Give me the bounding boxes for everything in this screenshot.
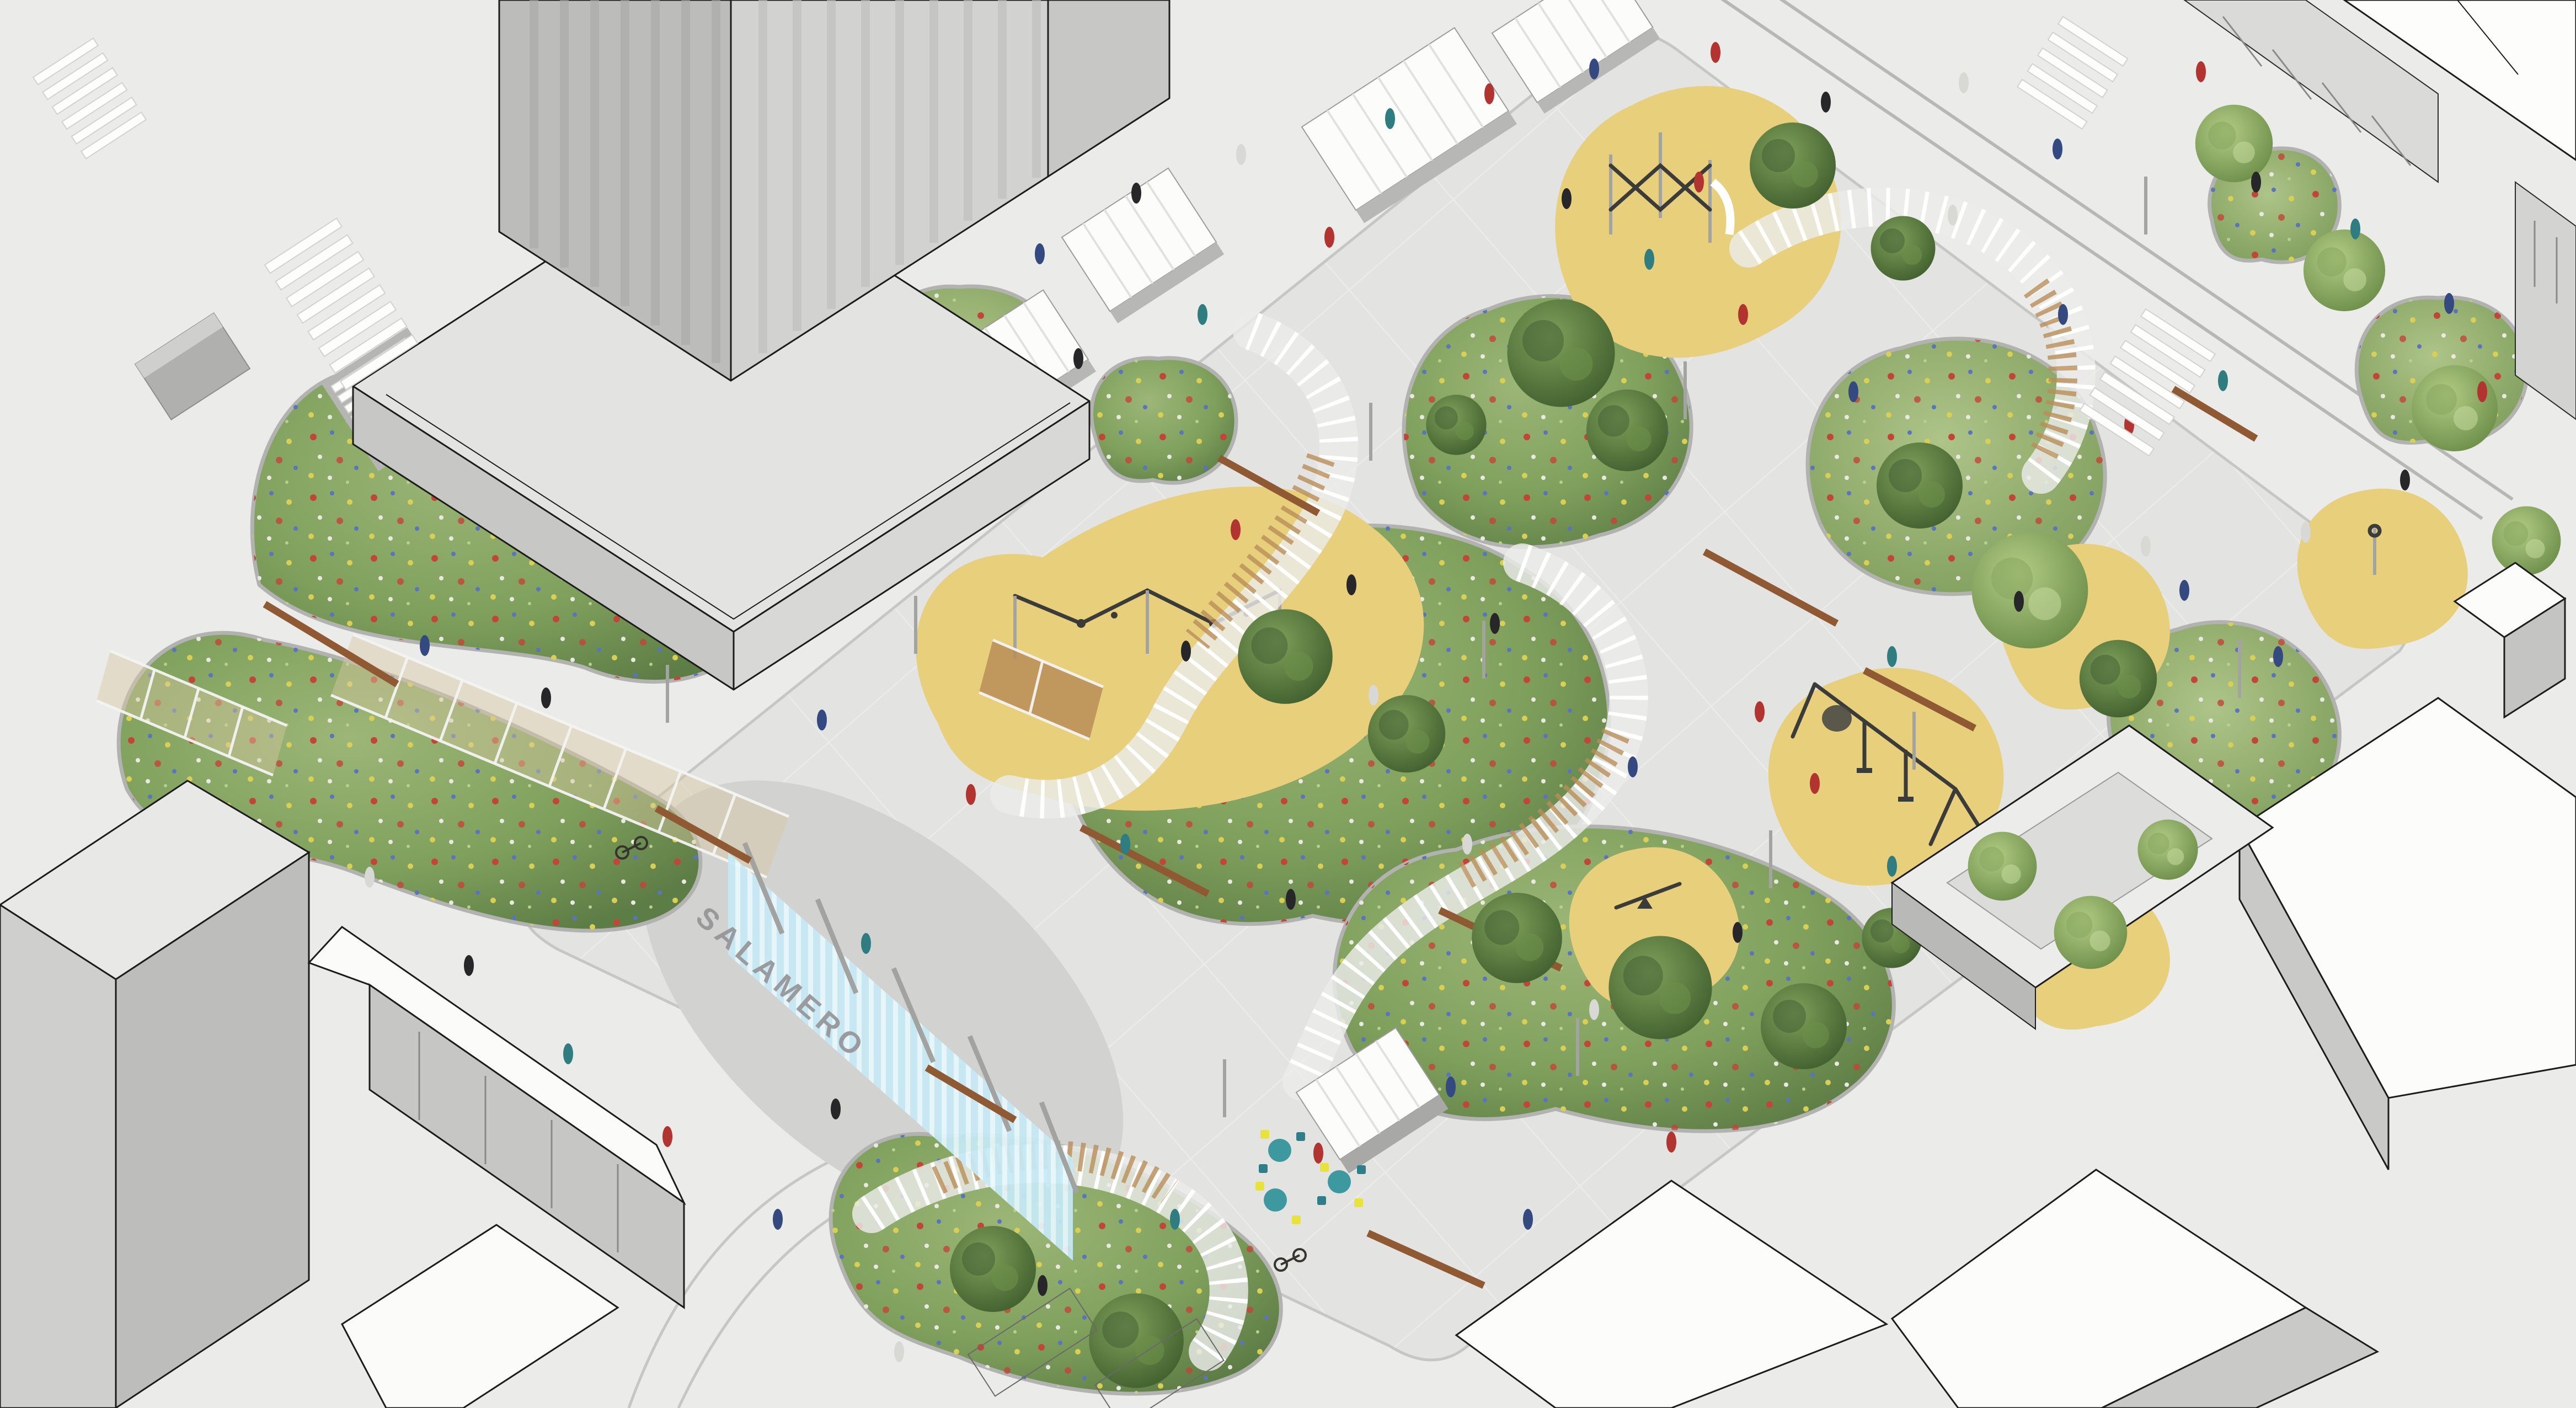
person [2014, 591, 2024, 612]
person [1313, 1143, 1323, 1164]
person [817, 710, 827, 730]
tree [1472, 893, 1562, 983]
person [1821, 92, 1831, 113]
person [831, 1098, 841, 1119]
person [2141, 536, 2151, 557]
person [2350, 218, 2360, 239]
person [1120, 834, 1130, 855]
person [1755, 701, 1765, 722]
person [2058, 304, 2068, 325]
cafe-table [1328, 1170, 1351, 1193]
person [464, 955, 474, 976]
tree [1761, 983, 1847, 1069]
person [2251, 172, 2261, 193]
person [1523, 1209, 1533, 1230]
person [1666, 1132, 1676, 1153]
person [1346, 574, 1356, 595]
person [1231, 519, 1241, 540]
person [1385, 108, 1395, 129]
person [1733, 922, 1743, 943]
person [1810, 773, 1820, 794]
tree [1972, 532, 2088, 649]
tree [1608, 936, 1712, 1039]
person [1711, 42, 1720, 63]
person [1644, 249, 1654, 270]
person [1446, 1076, 1456, 1097]
tree [1426, 394, 1486, 455]
tree [2080, 640, 2157, 717]
person [1131, 183, 1141, 204]
person [541, 687, 551, 708]
person [1589, 999, 1599, 1020]
person [1181, 641, 1191, 662]
person [894, 1341, 904, 1362]
tree [1871, 216, 1936, 281]
person [2301, 522, 2311, 543]
person [1462, 834, 1472, 855]
person [773, 1209, 783, 1230]
person [2444, 293, 2454, 314]
person [1959, 72, 1969, 93]
person [1324, 227, 1334, 248]
person [1948, 205, 1958, 226]
cafe-chair [1292, 1215, 1301, 1224]
cafe-chair [1354, 1198, 1363, 1207]
person [1286, 889, 1296, 910]
person [861, 933, 871, 954]
person [1490, 613, 1500, 634]
person [2218, 370, 2228, 391]
plaza-axonometric: SALAMERO [0, 0, 2576, 1408]
person [1589, 58, 1599, 79]
cafe-table [1268, 1139, 1291, 1162]
site-plan-rendering: SALAMERO [0, 0, 2576, 1408]
person [365, 867, 375, 888]
cafe-chair [1255, 1182, 1264, 1191]
tree [950, 1226, 1036, 1312]
building-facade [0, 905, 116, 1408]
person [1562, 188, 1572, 209]
person [1035, 243, 1045, 264]
cafe-chair [1320, 1163, 1329, 1172]
tree [1368, 695, 1445, 772]
cafe-chair [1317, 1196, 1326, 1205]
person [1369, 685, 1378, 706]
street-tree [2304, 230, 2385, 311]
tree [1586, 390, 1668, 471]
person [1198, 304, 1207, 325]
person [1628, 756, 1638, 777]
person [1887, 646, 1897, 667]
cafe-chair [1260, 1130, 1269, 1139]
street-tree [2412, 365, 2498, 451]
tree [1508, 300, 1615, 407]
courtyard-tree [2054, 896, 2128, 969]
courtyard-tree [1968, 832, 2037, 901]
person [1694, 172, 1704, 193]
person [662, 1126, 672, 1147]
person [2400, 470, 2410, 490]
person [420, 635, 430, 656]
street-tree [2492, 506, 2561, 575]
person [1170, 1209, 1180, 1230]
cafe-chair [1357, 1165, 1366, 1174]
person [2053, 138, 2062, 159]
person [2273, 646, 2283, 667]
person [1738, 304, 1748, 325]
tree [1089, 1293, 1184, 1388]
cafe-table [1264, 1188, 1287, 1212]
person [1484, 83, 1494, 104]
person [2477, 381, 2487, 402]
person [1038, 1275, 1047, 1296]
person [2179, 580, 2189, 601]
cafe-chair [1259, 1164, 1268, 1173]
person [2196, 61, 2206, 82]
garden-bed [1092, 358, 1237, 483]
tree [1238, 609, 1333, 704]
cafe-chair [1296, 1132, 1305, 1141]
tree [1750, 122, 1836, 209]
person [1887, 856, 1897, 877]
person [1848, 381, 1858, 402]
person [1236, 144, 1246, 165]
tree [1877, 442, 1963, 529]
street-tree [2195, 105, 2273, 182]
person [1073, 348, 1083, 369]
person [966, 784, 976, 805]
person [563, 1043, 573, 1064]
courtyard-tree [2137, 819, 2198, 879]
